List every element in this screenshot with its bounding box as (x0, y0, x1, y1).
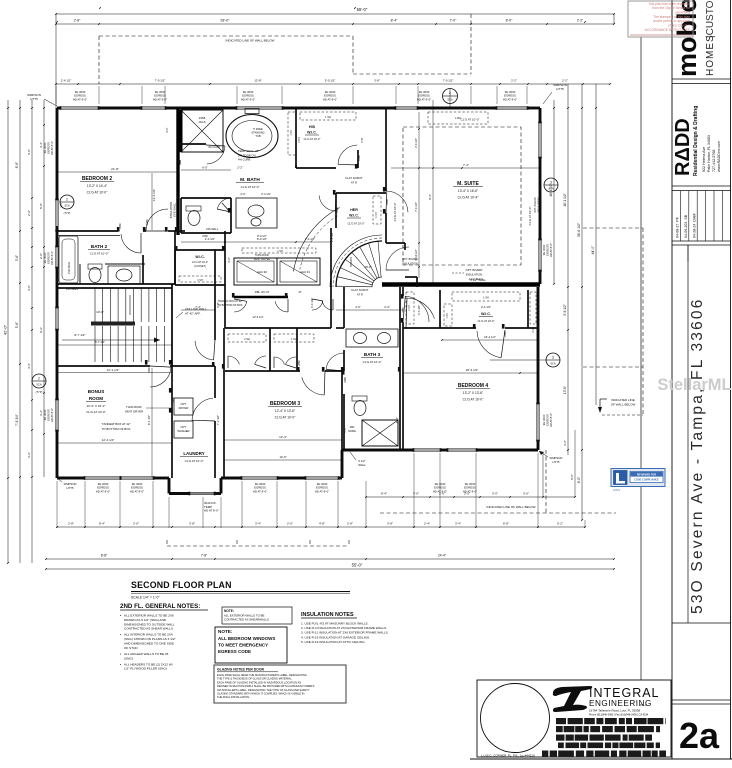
svg-text:8'-9 1/2": 8'-9 1/2" (257, 234, 267, 238)
svg-text:4'-0": 4'-0" (165, 127, 169, 132)
svg-text:HD AT 8'-0": HD AT 8'-0" (417, 97, 431, 101)
svg-text:3: 3 (552, 356, 554, 360)
svg-text:3'-6": 3'-6" (15, 255, 19, 261)
svg-text:HD AT 8'-0": HD AT 8'-0" (96, 489, 110, 493)
svg-text:HD AT 8'-0": HD AT 8'-0" (50, 141, 54, 155)
svg-text:EACH PANE OF GLAZING INSTALLED: EACH PANE OF GLAZING INSTALLED IN HAZARD… (217, 680, 301, 684)
svg-text:BONUS: BONUS (88, 389, 105, 394)
svg-text:5'-0 1/2": 5'-0 1/2" (325, 79, 336, 83)
svg-text:StellarMLS: StellarMLS (657, 376, 732, 394)
svg-text:(TYP): (TYP) (64, 211, 71, 215)
svg-text:8'-0": 8'-0" (577, 477, 581, 483)
svg-text:2'-0": 2'-0" (27, 210, 31, 216)
svg-text:3'-2": 3'-2" (27, 452, 31, 458)
svg-text:55'-0": 55'-0" (352, 563, 363, 568)
svg-text:HER: HER (350, 208, 358, 212)
svg-text:BATH 3: BATH 3 (364, 352, 381, 357)
svg-text:HIS: HIS (309, 125, 316, 129)
svg-text:CL'G AT 10'-0": CL'G AT 10'-0" (393, 203, 397, 222)
svg-text:8'-0": 8'-0" (570, 474, 574, 480)
svg-text:2'-8": 2'-8" (74, 19, 82, 23)
svg-text:SCALE 1/4" = 1'-0": SCALE 1/4" = 1'-0" (131, 596, 160, 600)
svg-text:MIN: MIN (350, 426, 355, 429)
svg-text:5'-6": 5'-6" (15, 322, 19, 328)
svg-text:14'-4 1/2": 14'-4 1/2" (152, 189, 156, 202)
svg-text:2: 2 (38, 377, 40, 381)
svg-text:21'-8": 21'-8" (111, 167, 119, 171)
svg-text:7'-0 1/2": 7'-0 1/2" (155, 79, 166, 83)
svg-text:AND DIMENSIONED TO ONE SIDE: AND DIMENSIONED TO ONE SIDE (124, 642, 174, 646)
svg-text:Residential Design & Drafting: Residential Design & Drafting (693, 106, 699, 176)
svg-text:OR INSTALLER'S LABEL, DESIGNAT: OR INSTALLER'S LABEL, DESIGNATING THE TY… (217, 688, 310, 692)
svg-text:3'-4": 3'-4" (255, 522, 261, 526)
svg-text:2'-2": 2'-2" (563, 440, 567, 446)
svg-text:7'-0": 7'-0" (450, 19, 458, 23)
svg-text:6'-1": 6'-1" (342, 305, 346, 311)
svg-text:13'-2" X 14'-4": 13'-2" X 14'-4" (87, 184, 107, 188)
svg-text:Phone (813)948-3483 | Fax (813: Phone (813)948-3483 | Fax (813)948-3438 … (589, 714, 649, 717)
svg-text:OPT. BOARD: OPT. BOARD (466, 268, 483, 272)
svg-text:2468: 2468 (336, 207, 339, 213)
svg-text:2'-4 1/2": 2'-4 1/2" (414, 138, 418, 148)
svg-text:M. BATH: M. BATH (240, 177, 260, 183)
svg-text:2468: 2468 (344, 377, 347, 383)
svg-text:53O Severn Ave - Tampa, FL 336: 53O Severn Ave - Tampa, FL 33606 (689, 297, 706, 614)
svg-text:ROOM: ROOM (89, 396, 103, 401)
svg-text:44'-0": 44'-0" (591, 245, 595, 254)
svg-text:18'-4 1/2": 18'-4 1/2" (466, 368, 479, 372)
svg-text:2460: 2460 (146, 219, 149, 225)
svg-text:TO MEET EMERGENCY: TO MEET EMERGENCY (218, 643, 268, 648)
svg-text:HD AT 8'-0": HD AT 8'-0" (253, 489, 267, 493)
svg-text:HD AT 8'-0": HD AT 8'-0" (503, 97, 517, 101)
svg-text:CONTRACTED AS SHEAR WALLS: CONTRACTED AS SHEAR WALLS (124, 627, 173, 631)
svg-text:8'-4": 8'-4" (381, 492, 387, 496)
svg-text:3'-8": 3'-8" (374, 79, 380, 83)
svg-text:7'-3 1/2": 7'-3 1/2" (216, 415, 220, 425)
svg-text:2860: 2860 (402, 307, 405, 313)
svg-text:LDCS: LDCS (613, 488, 620, 492)
svg-text:NOTE:: NOTE: (224, 609, 234, 613)
svg-text:8'-4": 8'-4" (99, 522, 105, 526)
svg-text:THE FINAL INSTALLATION.: THE FINAL INSTALLATION. (217, 695, 250, 699)
svg-text:AT 42" AFF.: AT 42" AFF. (185, 312, 201, 316)
svg-text:04-28-24 DAM: 04-28-24 DAM (693, 214, 697, 238)
svg-text:OF WALL BELOW: OF WALL BELOW (611, 403, 636, 407)
svg-text:NOTE:: NOTE: (218, 629, 233, 634)
svg-text:4'-6": 4'-6" (27, 363, 31, 369)
svg-text:•: • (120, 633, 121, 637)
svg-text:2X6 WALL: 2X6 WALL (206, 227, 219, 231)
svg-text:INDICATED LINE OF WALL BELOW: INDICATED LINE OF WALL BELOW (487, 505, 536, 509)
svg-text:3'-0": 3'-0" (59, 202, 63, 207)
svg-text:04-08-17 PF: 04-08-17 PF (676, 216, 680, 238)
svg-text:INTEGRAL: INTEGRAL (589, 686, 660, 700)
svg-text:3 1/2" BLK'G: 3 1/2" BLK'G (469, 278, 483, 281)
svg-text:4'-0": 4'-0" (27, 285, 31, 291)
svg-text:GLAZING STANDARD WITH WHICH IT: GLAZING STANDARD WITH WHICH IT COMPLIES,… (217, 692, 305, 696)
svg-text:2'-4 1/2": 2'-4 1/2" (261, 192, 271, 196)
svg-text:28'-0": 28'-0" (220, 19, 230, 23)
svg-text:REVIEWED FOR: REVIEWED FOR (637, 474, 657, 477)
svg-text:4T: 4T (298, 290, 301, 294)
svg-text:CL'G AT 10'-0": CL'G AT 10'-0" (192, 261, 208, 264)
svg-text:2: 2 (66, 198, 68, 202)
svg-text:www.RADDinc.com: www.RADDinc.com (717, 141, 721, 172)
svg-text:HTT5: HTT5 (67, 486, 74, 490)
svg-text:ALL HEADERS TO BE (2) 2X12 W/: ALL HEADERS TO BE (2) 2X12 W/ (124, 662, 173, 666)
svg-text:13'-4" X 16'-6": 13'-4" X 16'-6" (458, 189, 478, 193)
svg-text:CL'G AT 10'-0": CL'G AT 10'-0" (86, 410, 105, 414)
svg-text:SCA: SCA (64, 204, 70, 208)
svg-text:THIN ROOF: THIN ROOF (126, 405, 142, 409)
svg-text:7'-6 1/4": 7'-6 1/4" (15, 414, 19, 426)
svg-text:2a: 2a (679, 715, 720, 756)
svg-text:OPT. BOARD: OPT. BOARD (402, 257, 418, 261)
svg-text:10'-0": 10'-0" (96, 310, 104, 314)
svg-text:STAIRS: STAIRS (349, 257, 353, 267)
svg-text:2460: 2460 (504, 331, 507, 337)
svg-text:4'-4 1/2": 4'-4 1/2" (310, 298, 314, 308)
svg-text:TO BOTTOM OF BOX: TO BOTTOM OF BOX (102, 427, 131, 431)
svg-text:2'-8": 2'-8" (68, 522, 74, 526)
svg-text:1 BH: 1 BH (298, 137, 301, 143)
svg-text:SCA: SCA (36, 383, 42, 387)
svg-text:DEFINED IN SECTION R308.4 SHAL: DEFINED IN SECTION R308.4 SHALL BE PROVI… (217, 684, 315, 688)
svg-text:BEDROOM 4: BEDROOM 4 (458, 383, 489, 389)
svg-text:CL'G AT 10'-0": CL'G AT 10'-0" (185, 459, 204, 463)
svg-text:2'-4 1/2": 2'-4 1/2" (305, 237, 315, 241)
svg-text:VENT DRYER: VENT DRYER (125, 410, 144, 414)
svg-text:(SNG) SHOWN ON PLANS AS 3 1/2": (SNG) SHOWN ON PLANS AS 3 1/2" (124, 637, 176, 641)
svg-text:12'-1 1/2": 12'-1 1/2" (107, 368, 120, 372)
svg-text:AHU #1: AHU #1 (300, 270, 310, 274)
svg-text:7'-4": 7'-4" (195, 305, 201, 309)
svg-text:1 SH: 1 SH (325, 115, 331, 119)
svg-text:L.U.B.C. CORNER, FL, P.E., Lic: L.U.B.C. CORNER, FL, P.E., Lic #44319 (481, 754, 535, 758)
svg-text:8'-7 1/2": 8'-7 1/2" (95, 340, 105, 344)
svg-text:CL'G AT 10'-0": CL'G AT 10'-0" (461, 118, 480, 122)
svg-text:ALL EXTERIOR WALLS TO BE 2X6: ALL EXTERIOR WALLS TO BE 2X6 (124, 614, 174, 618)
svg-text:1 SH: 1 SH (197, 279, 203, 282)
svg-text:CL'G AT 10'-4": CL'G AT 10'-4" (458, 196, 479, 200)
svg-text:TEMP. ENCL. 36": TEMP. ENCL. 36" (238, 149, 259, 153)
svg-text:3'-4 1/2": 3'-4 1/2" (481, 305, 491, 309)
svg-text:ALL BEDROOM WINDOWS: ALL BEDROOM WINDOWS (218, 636, 275, 641)
svg-text:4'-4 1/2": 4'-4 1/2" (417, 305, 421, 315)
svg-text:3'-8": 3'-8" (387, 522, 393, 526)
svg-text:6'-0": 6'-0" (202, 166, 208, 170)
svg-text:7'-8": 7'-8" (201, 554, 207, 558)
svg-text:4% CURB: 4% CURB (238, 158, 250, 162)
svg-text:GLAZING NOTES PER DOOR: GLAZING NOTES PER DOOR (217, 668, 264, 672)
svg-text:5. USE R-19 INSULATION AT ATT: 5. USE R-19 INSULATION AT ATTIC CEILING. (301, 640, 366, 644)
svg-text:•: • (120, 662, 121, 666)
svg-text:INSULATION NOTES: INSULATION NOTES (301, 612, 354, 618)
svg-text:MORE: MORE (348, 430, 356, 433)
svg-text:16'-1 1/2": 16'-1 1/2" (563, 193, 567, 206)
svg-text:3'-4": 3'-4" (455, 522, 461, 526)
svg-text:VENT DRYER: VENT DRYER (254, 257, 271, 261)
svg-text:ALL INTERIOR WALLS TO BE 2X4: ALL INTERIOR WALLS TO BE 2X4 (124, 633, 173, 637)
svg-text:16'-4 1/2": 16'-4 1/2" (484, 335, 496, 339)
svg-text:6'-0": 6'-0" (27, 149, 31, 155)
svg-text:12'-4" X 13'-6": 12'-4" X 13'-6" (275, 409, 295, 413)
svg-text:12'-4": 12'-4" (279, 435, 287, 439)
svg-text:BATH 2: BATH 2 (91, 244, 108, 249)
svg-text:1 SH: 1 SH (483, 296, 489, 300)
svg-text:1 SH: 1 SH (446, 313, 449, 319)
svg-text:CL'G AT 10'-0": CL'G AT 10'-0" (528, 207, 532, 226)
svg-text:HD AT 8'-0": HD AT 8'-0" (463, 489, 477, 493)
svg-text:13'-2" X 13'-6": 13'-2" X 13'-6" (463, 391, 483, 395)
svg-text:INDICATED LINE: INDICATED LINE (611, 398, 634, 402)
svg-text:HD AT 8'-0": HD AT 8'-0" (50, 408, 54, 422)
svg-text:CONTRACTED AS SHEARWALLS: CONTRACTED AS SHEARWALLS (224, 617, 269, 621)
svg-text:7'-4": 7'-4" (463, 163, 469, 167)
svg-text:3'-0": 3'-0" (492, 492, 498, 496)
svg-text:2'-0": 2'-0" (531, 327, 535, 332)
svg-text:12'-8": 12'-8" (254, 79, 261, 83)
svg-text:13'-6": 13'-6" (563, 386, 567, 394)
svg-text:RΔDD: RΔDD (672, 118, 694, 176)
svg-text:04-09-203 SB: 04-09-203 SB (684, 214, 688, 238)
svg-text:2'-2": 2'-2" (511, 79, 517, 83)
svg-text:2'-0": 2'-0" (133, 522, 139, 526)
svg-text:5'-8": 5'-8" (360, 137, 364, 142)
svg-text:EACH PANE SHALL BEAR THE MANUF: EACH PANE SHALL BEAR THE MANUFACTURER'S … (217, 673, 307, 677)
svg-text:10'-4" X 15'-2": 10'-4" X 15'-2" (87, 404, 106, 408)
svg-text:2'-0": 2'-0" (240, 192, 245, 196)
svg-text:CL'G AT 10'-0": CL'G AT 10'-0" (478, 319, 495, 323)
svg-text:W.I.C.: W.I.C. (481, 312, 491, 316)
svg-text:HD AT 8'-0": HD AT 8'-0" (241, 97, 255, 101)
svg-text:16784 Tallassee Road, Lutz, FL: 16784 Tallassee Road, Lutz, FL 33558 (589, 709, 641, 713)
svg-text:DBL. RC AT: DBL. RC AT (255, 290, 270, 294)
svg-text:FLAT SOFFIT: FLAT SOFFIT (345, 176, 363, 180)
svg-text:ACCORDANCE WITH CODES: ACCORDANCE WITH CODES (645, 28, 691, 32)
svg-text:CL'G AT 10'-0": CL'G AT 10'-0" (348, 222, 365, 226)
svg-text:5'-8": 5'-8" (39, 203, 43, 209)
svg-text:42'-0": 42'-0" (3, 324, 8, 335)
svg-text:(TYP): (TYP) (36, 390, 43, 394)
svg-text:2'-4": 2'-4" (424, 522, 430, 526)
svg-text:W.I.C.: W.I.C. (307, 131, 317, 135)
svg-text:8'-7 1/2": 8'-7 1/2" (75, 333, 86, 337)
svg-text:1 BH: 1 BH (455, 116, 461, 120)
svg-text:SCA: SCA (548, 187, 554, 191)
svg-text:8'-6": 8'-6" (15, 162, 19, 168)
svg-text:1 SH: 1 SH (277, 250, 283, 253)
svg-text:'TANDEM' BOX AT 42": 'TANDEM' BOX AT 42" (101, 422, 130, 426)
svg-text:5'-2": 5'-2" (557, 522, 563, 526)
svg-text:2'-0": 2'-0" (287, 522, 293, 526)
svg-text:2860: 2860 (298, 360, 301, 366)
svg-text:8'-8": 8'-8" (101, 554, 107, 558)
svg-text:W.I.C.: W.I.C. (349, 214, 359, 218)
svg-text:AT 8': AT 8' (357, 293, 364, 297)
svg-text:HD AT 8'-0": HD AT 8'-0" (204, 509, 219, 513)
svg-text:LNB 36CH: LNB 36CH (67, 262, 71, 275)
svg-text:4'-8": 4'-8" (319, 522, 325, 526)
svg-text:(CLOSET): (CLOSET) (194, 265, 206, 268)
svg-text:3. USE R-11 INSULATION AT 2X6: 3. USE R-11 INSULATION AT 2X6 EXTERIOR F… (301, 631, 389, 635)
svg-text:24" DOOR ON: 24" DOOR ON (238, 153, 256, 157)
svg-text:HD AT 8'-0": HD AT 8'-0" (50, 251, 54, 265)
svg-text:8'-4": 8'-4" (428, 194, 432, 200)
svg-text:|CUSTO: |CUSTO (705, 0, 716, 38)
svg-text:CL'G AT 10'-0": CL'G AT 10'-0" (463, 398, 484, 402)
svg-text:INSULATION: INSULATION (402, 262, 417, 266)
svg-text:BEDROOM 3: BEDROOM 3 (270, 401, 301, 407)
svg-text:2'-2": 2'-2" (562, 79, 568, 83)
svg-text:TUB: TUB (255, 134, 260, 138)
svg-text:36'-6 1/2": 36'-6 1/2" (577, 222, 581, 237)
svg-text:INSULATION: INSULATION (538, 197, 541, 212)
svg-text:HD AT 8'-0": HD AT 8'-0" (549, 243, 553, 257)
svg-text:7'-0 1/2": 7'-0 1/2" (443, 79, 454, 83)
svg-text:•: • (120, 614, 121, 618)
svg-text:2468: 2468 (386, 199, 389, 205)
svg-text:AHU #2: AHU #2 (257, 270, 267, 274)
svg-text:INDICATED LINE OF WALL BELOW: INDICATED LINE OF WALL BELOW (226, 39, 275, 43)
svg-text:HD AT 8'-0": HD AT 8'-0" (323, 97, 337, 101)
svg-text:5'-0": 5'-0" (343, 427, 347, 432)
svg-text:SCA: SCA (550, 362, 556, 366)
svg-text:STANDING: STANDING (251, 131, 264, 135)
svg-text:DRYER: DRYER (179, 406, 189, 410)
svg-text:2460: 2460 (148, 367, 151, 373)
svg-text:2. USE R-4 INSULATION AT 2X4 E: 2. USE R-4 INSULATION AT 2X4 EXTERIOR FR… (301, 626, 387, 630)
svg-text:CODE COMPLIANCE: CODE COMPLIANCE (634, 479, 659, 482)
svg-text:CL'G AT 10'-0": CL'G AT 10'-0" (363, 360, 382, 364)
svg-text:CL'G AT 10'-0": CL'G AT 10'-0" (241, 185, 260, 189)
svg-text:WASHER: WASHER (177, 429, 189, 433)
svg-text:6'-8": 6'-8" (503, 522, 509, 526)
svg-text:922 Helena Ave: 922 Helena Ave (702, 147, 706, 172)
svg-text:2'-9 1/2": 2'-9 1/2" (330, 232, 334, 242)
svg-text:12'-6 1/4": 12'-6 1/4" (253, 315, 264, 319)
svg-text:8'-4": 8'-4" (391, 19, 399, 23)
svg-text:AT 8': AT 8' (351, 181, 358, 185)
svg-text:LAUNDRY: LAUNDRY (183, 451, 204, 456)
svg-text:55'-0": 55'-0" (357, 7, 368, 12)
svg-text:OF STUD: OF STUD (124, 646, 138, 650)
svg-text:2ND FL. GENERAL NOTES:: 2ND FL. GENERAL NOTES: (120, 603, 200, 610)
svg-text:2'-2": 2'-2" (577, 19, 583, 23)
svg-text:9'-2": 9'-2" (39, 327, 43, 333)
svg-text:TO BOTTOM OF BOX: TO BOTTOM OF BOX (218, 304, 243, 307)
svg-text:M. SUITE: M. SUITE (457, 181, 479, 187)
svg-text:HD AT 8'-0": HD AT 8'-0" (73, 97, 87, 101)
svg-text:5' FREE: 5' FREE (253, 127, 263, 131)
svg-text:2'-2": 2'-2" (237, 166, 243, 170)
svg-text:1/2" PLYWOOD FILLER (SNG): 1/2" PLYWOOD FILLER (SNG) (124, 667, 167, 671)
svg-text:2'-4": 2'-4" (384, 305, 390, 309)
svg-text:2'-4 1/2": 2'-4 1/2" (61, 79, 72, 83)
svg-text:ALL ANGLED WALLS TO BE 45: ALL ANGLED WALLS TO BE 45 (124, 652, 169, 656)
svg-text:2 SH: 2 SH (244, 337, 250, 341)
svg-text:DRAWN AS 5 1/2" (SNG) AND: DRAWN AS 5 1/2" (SNG) AND (124, 618, 167, 622)
svg-text:CL'G AT 10'-0": CL'G AT 10'-0" (90, 252, 109, 256)
svg-text:8'-0": 8'-0" (506, 19, 514, 23)
svg-text:2460: 2460 (119, 223, 122, 229)
svg-text:1 SH: 1 SH (290, 130, 293, 136)
svg-text:FLAT SOFFIT: FLAT SOFFIT (351, 288, 369, 292)
svg-text:HD AT 8'-0": HD AT 8'-0" (315, 489, 329, 493)
svg-text:'HANDRL' BOX AT 42": 'HANDRL' BOX AT 42" (217, 300, 242, 303)
svg-text:1. USE FOIL -R2 AT MASONRY BLO: 1. USE FOIL -R2 AT MASONRY BLOCK WALLS. (301, 622, 369, 626)
svg-text:HTT5: HTT5 (30, 97, 38, 101)
svg-text:HD AT 8'-0": HD AT 8'-0" (549, 413, 553, 427)
svg-text:1 SH: 1 SH (408, 305, 411, 311)
svg-text:THE TYPE & THICKNESS OF GLASS: THE TYPE & THICKNESS OF GLASS OR GLAZING… (217, 677, 293, 681)
svg-text:727-442-5768: 727-442-5768 (712, 150, 716, 172)
svg-text:12'-4 1/4": 12'-4 1/4" (102, 438, 115, 442)
svg-text:•: • (120, 652, 121, 656)
svg-text:BEDROOM 2: BEDROOM 2 (82, 176, 113, 182)
svg-text:7'-4 1/2": 7'-4 1/2" (414, 202, 418, 212)
svg-text:3'-6 1/2": 3'-6 1/2" (563, 304, 567, 316)
svg-text:HTT5: HTT5 (556, 87, 564, 91)
svg-text:Palm Harbor, FL 34683: Palm Harbor, FL 34683 (707, 135, 711, 172)
svg-text:4'-0": 4'-0" (227, 257, 231, 263)
svg-text:1 SH: 1 SH (375, 212, 378, 218)
svg-text:8'-1 1/2": 8'-1 1/2" (147, 415, 151, 425)
svg-text:DIMENSIONED TO OUTSIDE WALL: DIMENSIONED TO OUTSIDE WALL (124, 622, 175, 626)
svg-text:2'-8": 2'-8" (347, 522, 353, 526)
svg-text:CFE WALL: CFE WALL (173, 203, 177, 217)
svg-text:12'-0": 12'-0" (279, 455, 286, 459)
svg-text:SECOND FLOOR PLAN: SECOND FLOOR PLAN (131, 580, 232, 590)
svg-text:2460: 2460 (172, 397, 175, 403)
svg-text:1 SH: 1 SH (291, 337, 297, 341)
svg-text:EGRESS CODE: EGRESS CODE (218, 649, 251, 654)
svg-text:4. USE R-19 INSULATION AT GARA: 4. USE R-19 INSULATION AT GARAGE CEILING… (301, 635, 370, 639)
svg-text:18'-0": 18'-0" (364, 265, 371, 269)
svg-text:4'-0": 4'-0" (355, 305, 361, 309)
svg-text:HOMES: HOMES (705, 34, 716, 76)
svg-text:(SNG): (SNG) (124, 656, 133, 660)
svg-text:INSULATION: INSULATION (466, 273, 483, 277)
svg-text:W.I.C.: W.I.C. (195, 255, 204, 259)
svg-text:24'-4": 24'-4" (438, 554, 446, 558)
svg-text:3: 3 (550, 181, 552, 185)
svg-text:P.L.L.: P.L.L. (640, 703, 648, 707)
svg-text:WALL: WALL (358, 463, 366, 467)
svg-text:3'-0": 3'-0" (523, 492, 529, 496)
svg-text:CL'G AT 10'-0": CL'G AT 10'-0" (87, 191, 108, 195)
svg-text:HTT5: HTT5 (553, 460, 560, 464)
svg-text:HD AT 8'-0": HD AT 8'-0" (130, 489, 144, 493)
svg-text:JACK: JACK (198, 120, 205, 124)
svg-text:2468: 2468 (202, 235, 208, 238)
svg-text:CL'G AT 10'-0": CL'G AT 10'-0" (304, 137, 321, 141)
svg-text:3'-8": 3'-8" (189, 522, 195, 526)
svg-text:CL'G AT 10'-0": CL'G AT 10'-0" (275, 416, 296, 420)
svg-text:4'-11": 4'-11" (395, 417, 399, 423)
svg-text:THIN ROOF: THIN ROOF (255, 253, 270, 257)
